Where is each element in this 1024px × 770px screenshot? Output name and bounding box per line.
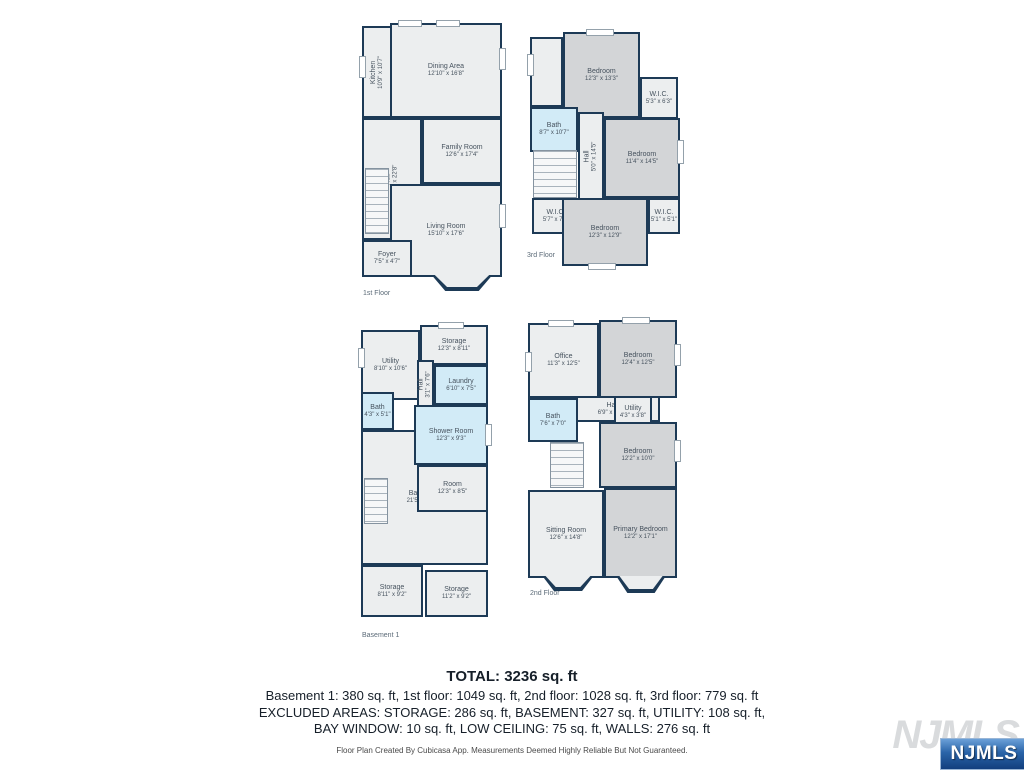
- stairs: [365, 168, 389, 234]
- room-bedroom: Bedroom12'3" x 13'3": [563, 32, 640, 118]
- area-summary: TOTAL: 3236 sq. ft Basement 1: 380 sq. f…: [0, 668, 1024, 738]
- room-w-i-c: W.I.C.5'3" x 6'3": [640, 77, 678, 119]
- room-foyer: Foyer7'5" x 4'7": [362, 240, 412, 277]
- window-marker: [674, 344, 681, 366]
- room-bedroom: Bedroom12'4" x 12'5": [599, 320, 677, 398]
- window-marker: [358, 348, 365, 368]
- room-label: Bedroom12'3" x 12'9": [589, 224, 622, 241]
- room-bath: Bath7'6" x 7'0": [528, 398, 578, 442]
- room-shower-room: Shower Room12'3" x 9'3": [414, 405, 488, 465]
- bay-window-glass: [428, 275, 496, 287]
- room-label: Shower Room12'3" x 9'3": [429, 427, 473, 444]
- bay-window: [610, 576, 672, 593]
- excluded-areas-line-1: EXCLUDED AREAS: STORAGE: 286 sq. ft, BAS…: [0, 705, 1024, 722]
- window-marker: [527, 54, 534, 76]
- room-label: Storage12'3" x 8'11": [438, 337, 470, 354]
- room-hall: Hall5'0" x 14'5": [578, 112, 604, 200]
- room-bath: Bath8'7" x 10'7": [530, 107, 578, 152]
- room-w-i-c: W.I.C.5'1" x 5'1": [648, 198, 680, 234]
- room-label: Sitting Room12'6" x 14'8": [546, 526, 586, 543]
- floor-label-basement-1: Basement 1: [362, 632, 399, 639]
- total-area: TOTAL: 3236 sq. ft: [0, 668, 1024, 685]
- njmls-logo-text: NJMLS: [951, 743, 1018, 765]
- room-label: Bedroom12'3" x 13'3": [585, 67, 618, 84]
- room-label: W.I.C.5'1" x 5'1": [651, 208, 677, 225]
- room-label: Bath4'3" x 5'1": [364, 403, 390, 420]
- disclaimer-text: Floor Plan Created By Cubicasa App. Meas…: [0, 746, 1024, 755]
- room-label: Hall5'0" x 14'5": [583, 141, 600, 171]
- bay-window-glass: [540, 576, 596, 587]
- floor-plan-stage: Kitchen10'9" x 10'7"Dining Area12'10" x …: [0, 0, 1024, 768]
- window-marker: [398, 20, 422, 27]
- window-marker: [622, 317, 650, 324]
- window-marker: [677, 140, 684, 164]
- room-label: Bath8'7" x 10'7": [539, 121, 569, 138]
- bay-window: [424, 275, 500, 291]
- room-utility: Utility8'10" x 10'6": [361, 330, 420, 400]
- room-label: Laundry6'10" x 7'5": [446, 377, 476, 394]
- floor-areas-line: Basement 1: 380 sq. ft, 1st floor: 1049 …: [0, 688, 1024, 705]
- room-storage: Storage11'2" x 9'2": [425, 570, 488, 617]
- room-label: Utility4'3" x 3'8": [620, 404, 646, 421]
- window-marker: [499, 204, 506, 228]
- room-label: Bedroom12'4" x 12'5": [622, 351, 655, 368]
- room-kitchen: Kitchen10'9" x 10'7": [362, 26, 392, 118]
- window-marker: [436, 20, 460, 27]
- floor-label-2nd-floor: 2nd Floor: [530, 590, 560, 597]
- window-marker: [586, 29, 614, 36]
- window-marker: [588, 263, 616, 270]
- room-primary-bedroom: Primary Bedroom12'2" x 17'1": [604, 488, 677, 578]
- floor-label-1st-floor: 1st Floor: [363, 290, 390, 297]
- room-bath: Bath4'3" x 5'1": [361, 392, 394, 430]
- room-label: Room12'3" x 8'5": [438, 480, 468, 497]
- window-marker: [548, 320, 574, 327]
- room-sitting-room: Sitting Room12'6" x 14'8": [528, 490, 604, 578]
- room-storage: Storage12'3" x 8'11": [420, 325, 488, 365]
- room-label: Family Room12'6" x 17'4": [441, 143, 482, 160]
- room-room: Room12'3" x 8'5": [417, 465, 488, 512]
- window-marker: [525, 352, 532, 372]
- room-label: Storage11'2" x 9'2": [442, 585, 471, 602]
- window-marker: [485, 424, 492, 446]
- room-label: W.I.C.5'3" x 6'3": [646, 90, 672, 107]
- stairs: [533, 150, 577, 198]
- window-marker: [674, 440, 681, 462]
- room-label: Storage8'11" x 9'2": [377, 583, 406, 600]
- window-marker: [359, 56, 366, 78]
- excluded-areas-line-2: BAY WINDOW: 10 sq. ft, LOW CEILING: 75 s…: [0, 721, 1024, 738]
- room-label: Dining Area12'10" x 16'8": [428, 62, 464, 79]
- room-label: Hall3'1" x 7'6": [417, 371, 434, 397]
- bay-window-glass: [614, 576, 668, 589]
- room-dining-area: Dining Area12'10" x 16'8": [390, 23, 502, 118]
- room-label: Living Room15'10" x 17'6": [427, 222, 466, 239]
- room-unlabeled: [530, 37, 563, 107]
- room-label: Bedroom11'4" x 14'5": [626, 150, 658, 167]
- room-bedroom: Bedroom12'2" x 10'0": [599, 422, 677, 488]
- room-office: Office11'3" x 12'5": [528, 323, 599, 398]
- room-storage: Storage8'11" x 9'2": [361, 565, 423, 617]
- bay-window: [536, 576, 600, 591]
- room-label: Office11'3" x 12'5": [547, 352, 579, 369]
- stairs: [364, 478, 388, 524]
- room-label: Primary Bedroom12'2" x 17'1": [613, 525, 667, 542]
- room-bedroom: Bedroom12'3" x 12'9": [562, 198, 648, 266]
- window-marker: [499, 48, 506, 70]
- njmls-logo: NJMLS: [940, 738, 1024, 770]
- room-hall: Hall3'1" x 7'6": [417, 360, 434, 408]
- room-label: Bedroom12'2" x 10'0": [622, 447, 655, 464]
- floor-label-3rd-floor: 3rd Floor: [527, 252, 555, 259]
- room-label: Bath7'6" x 7'0": [540, 412, 566, 429]
- room-laundry: Laundry6'10" x 7'5": [434, 365, 488, 405]
- stairs: [550, 442, 584, 488]
- room-label: Kitchen10'9" x 10'7": [369, 56, 386, 89]
- room-label: Utility8'10" x 10'6": [374, 357, 407, 374]
- room-bedroom: Bedroom11'4" x 14'5": [604, 118, 680, 198]
- window-marker: [438, 322, 464, 329]
- room-family-room: Family Room12'6" x 17'4": [422, 118, 502, 184]
- room-label: Foyer7'5" x 4'7": [374, 250, 400, 267]
